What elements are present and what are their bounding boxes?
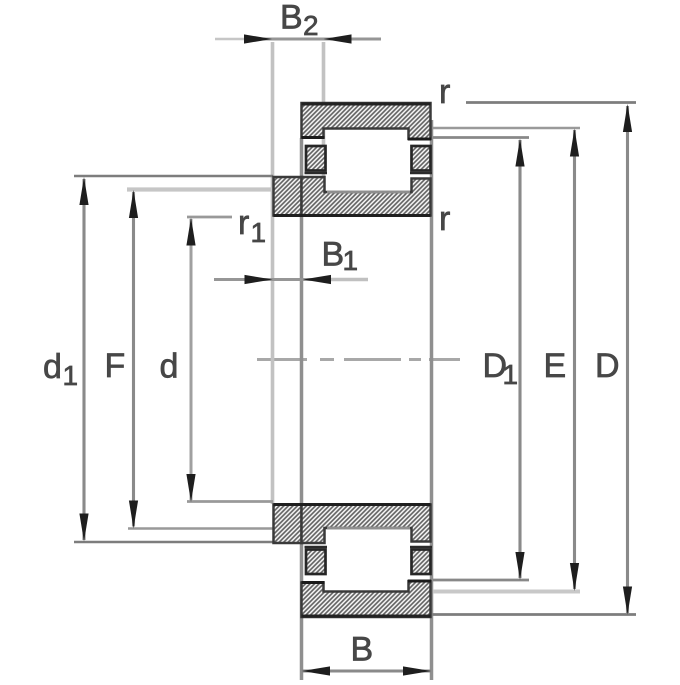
- svg-text:r: r: [439, 73, 450, 111]
- svg-text:1: 1: [251, 217, 267, 248]
- svg-text:E: E: [544, 347, 567, 385]
- svg-text:d: d: [43, 348, 62, 386]
- svg-text:2: 2: [303, 10, 319, 41]
- svg-text:r: r: [439, 200, 450, 238]
- svg-text:r: r: [238, 204, 249, 242]
- svg-text:D: D: [595, 347, 620, 385]
- svg-text:d: d: [160, 348, 179, 386]
- svg-text:B: B: [322, 236, 345, 274]
- svg-text:B: B: [280, 0, 303, 37]
- svg-text:F: F: [105, 347, 126, 385]
- svg-text:B: B: [351, 631, 374, 669]
- svg-text:1: 1: [63, 360, 79, 391]
- svg-text:1: 1: [503, 359, 519, 390]
- svg-text:1: 1: [343, 245, 359, 276]
